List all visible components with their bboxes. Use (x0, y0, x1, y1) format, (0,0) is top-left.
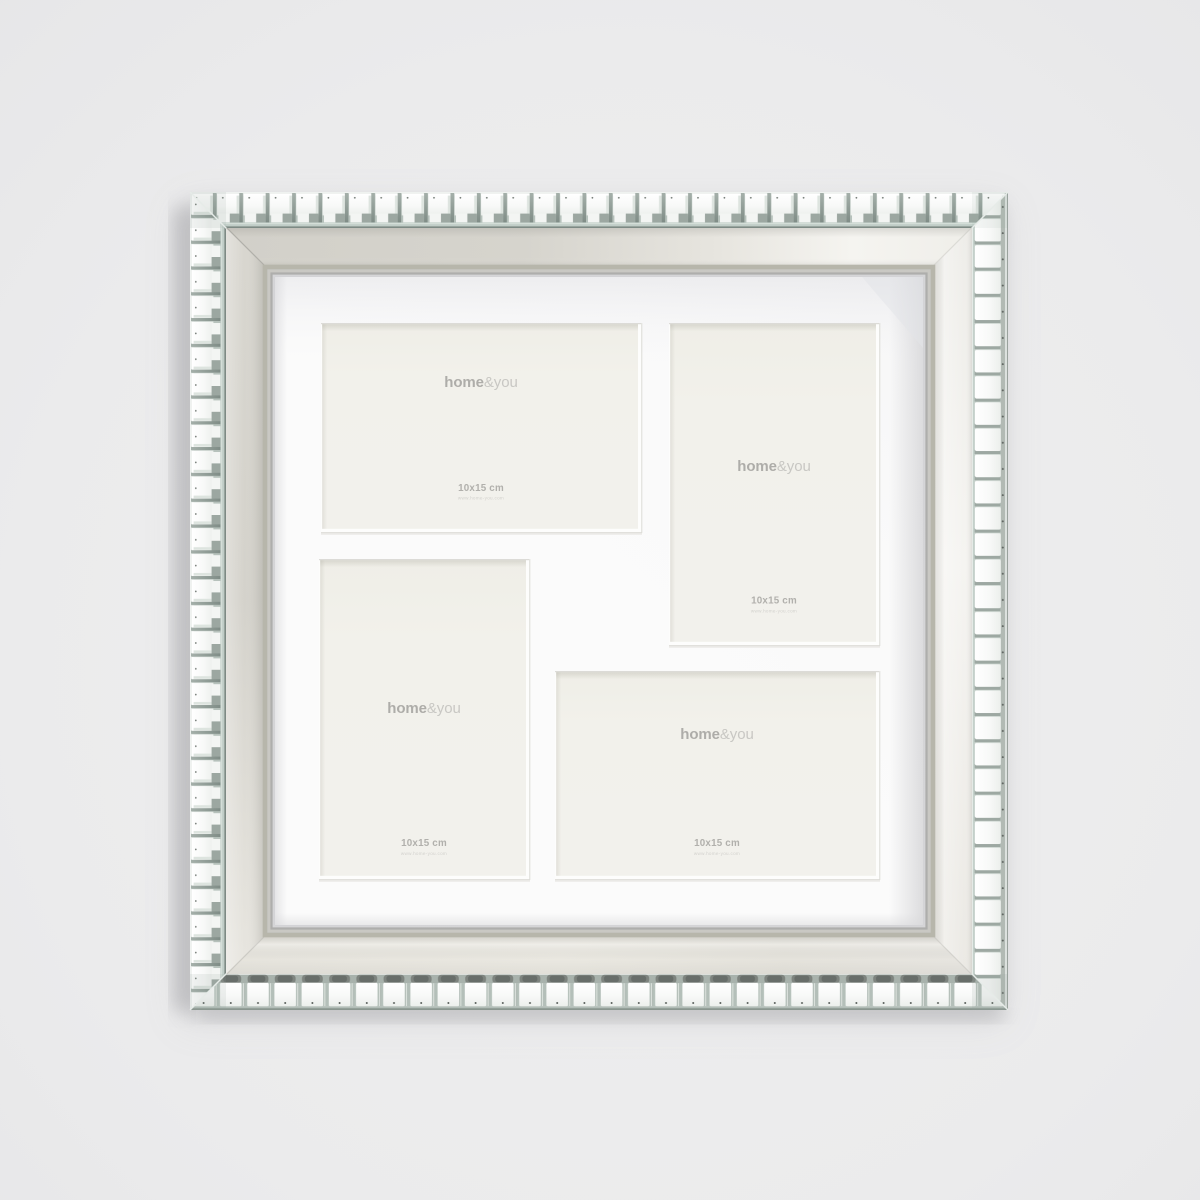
svg-text:10x15 cm: 10x15 cm (751, 596, 797, 607)
svg-text:home&you: home&you (737, 458, 810, 475)
svg-text:home&you: home&you (444, 374, 517, 391)
svg-text:www.home-you.com: www.home-you.com (751, 609, 797, 614)
svg-text:home&you: home&you (680, 726, 753, 743)
svg-text:www.home-you.com: www.home-you.com (458, 496, 504, 501)
svg-text:10x15 cm: 10x15 cm (458, 483, 504, 494)
svg-text:www.home-you.com: www.home-you.com (694, 851, 740, 856)
svg-text:home&you: home&you (387, 700, 460, 717)
svg-text:10x15 cm: 10x15 cm (694, 838, 740, 849)
svg-text:www.home-you.com: www.home-you.com (401, 851, 447, 856)
svg-text:10x15 cm: 10x15 cm (401, 838, 447, 849)
